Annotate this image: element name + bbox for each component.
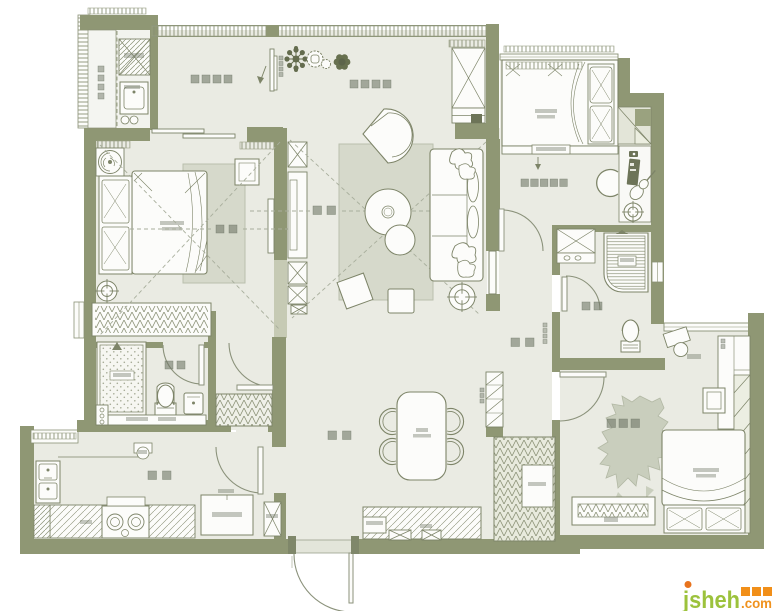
svg-text:.com: .com <box>741 596 772 611</box>
svg-text:jsheh: jsheh <box>682 587 740 611</box>
